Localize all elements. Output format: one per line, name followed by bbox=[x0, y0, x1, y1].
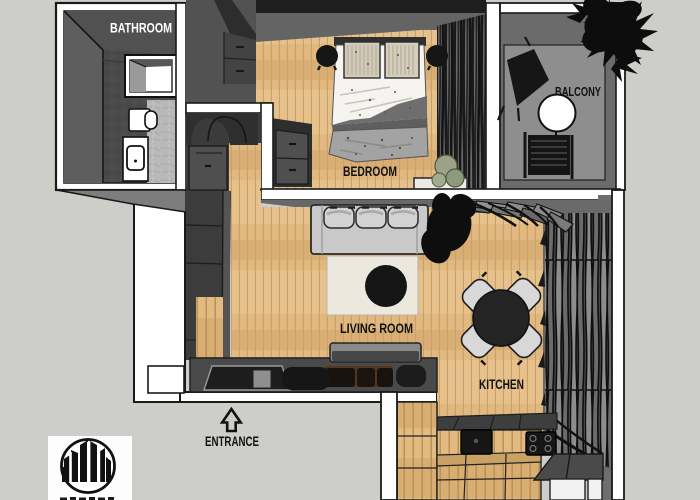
svg-text:BEDROOM: BEDROOM bbox=[343, 164, 397, 179]
svg-text:BATHROOM: BATHROOM bbox=[110, 21, 172, 36]
svg-text:ENTRANCE: ENTRANCE bbox=[205, 434, 259, 449]
svg-text:LIVING ROOM: LIVING ROOM bbox=[340, 321, 413, 336]
svg-text:KITCHEN: KITCHEN bbox=[479, 377, 524, 392]
